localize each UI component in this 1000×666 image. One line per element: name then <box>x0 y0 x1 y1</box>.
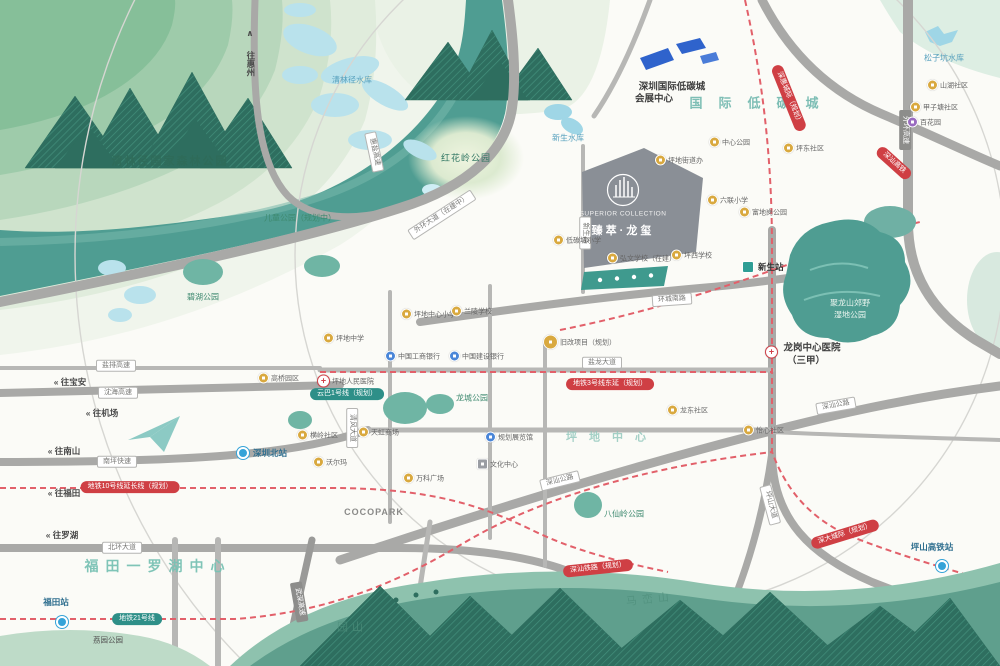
road-pill-13: 武深高速 <box>289 581 308 623</box>
poi-3: 低碳城小学 <box>553 235 601 246</box>
metro-badge-3: 地铁10号线延长线（规划） <box>81 481 180 493</box>
metro-badge-2: 地铁3号线东延（规划） <box>566 378 654 390</box>
map-label-1: 清林径水库 <box>332 75 372 84</box>
poi-label: 沃尔玛 <box>326 457 347 467</box>
road-pill-8: 环城南路 <box>652 292 693 307</box>
station-label: 坪山高铁站 <box>911 541 954 553</box>
poi-21: 中国工商银行 <box>385 351 440 362</box>
map-label-22: « 往机场 <box>86 409 119 419</box>
map-label-27: 八仙岭公园 <box>604 509 644 518</box>
poi-icon <box>667 405 678 416</box>
map-label-26: 荔园公园 <box>93 637 123 646</box>
poi-icon <box>485 432 496 443</box>
poi-12: 横岭社区 <box>297 430 338 441</box>
map-label-11: （三甲） <box>787 357 825 368</box>
poi-icon <box>258 373 269 384</box>
road-pill-0: 盐排高速 <box>96 360 136 372</box>
poi-label: 万科广场 <box>416 473 444 483</box>
poi-26 <box>765 346 780 359</box>
poi-icon <box>655 155 666 166</box>
poi-icon <box>297 430 308 441</box>
road-pill-11: 深汕公路 <box>815 396 857 415</box>
poi-icon <box>709 137 720 148</box>
poi-13: 天虹商场 <box>358 427 399 438</box>
station-2: 坪山高铁站 <box>936 560 948 572</box>
poi-icon <box>449 351 460 362</box>
poi-icon <box>451 306 462 317</box>
poi-18: 山湖社区 <box>927 80 968 91</box>
poi-19: 甲子塘社区 <box>910 102 958 113</box>
map-label-25: « 往罗湖 <box>46 531 79 541</box>
poi-label: 兰陵学校 <box>464 306 492 316</box>
poi-label: 甲子塘社区 <box>923 102 958 112</box>
poi-label: 怡心社区 <box>756 425 784 435</box>
road-pill-2: 南坪快速 <box>97 456 137 468</box>
poi-6: 坪地街道办 <box>655 155 703 166</box>
poi-label: 龙东社区 <box>680 405 708 415</box>
poi-label: 高桥园区 <box>271 373 299 383</box>
station-dot <box>56 616 68 628</box>
metro-badge-4: 深大城际（规划） <box>810 518 880 550</box>
map-label-20: ∧ <box>247 29 254 39</box>
poi-label: 百花园 <box>920 117 941 127</box>
poi-icon <box>401 309 412 320</box>
poi-label: 坪西学校 <box>684 250 712 260</box>
map-label-5: 深圳国际低碳城 <box>639 83 706 94</box>
poi-16: 龙东社区 <box>667 405 708 416</box>
poi-icon <box>907 117 918 128</box>
station-dot <box>742 261 754 273</box>
road-pill-3: 北环大道 <box>102 542 142 554</box>
poi-label: 规划展览馆 <box>498 432 533 442</box>
metro-badge-6: 地铁21号线 <box>112 613 162 625</box>
poi-icon <box>739 207 750 218</box>
poi-icon <box>607 253 618 264</box>
hospital-icon <box>765 346 778 359</box>
metro-badge-1: 深汕高铁 <box>874 145 913 182</box>
poi-icon <box>385 351 396 362</box>
poi-icon <box>403 473 414 484</box>
poi-20: 旧改项目（规划） <box>543 335 616 350</box>
map-label-3: 新生水库 <box>552 133 584 142</box>
poi-label: 富地岗公园 <box>752 207 787 217</box>
map-label-13: 湿地公园 <box>834 310 866 319</box>
poi-7: 中心公园 <box>709 137 750 148</box>
poi-icon <box>927 80 938 91</box>
poi-9: 六联小学 <box>707 195 748 206</box>
poi-icon <box>783 143 794 154</box>
station-label: 新生站 <box>758 261 784 273</box>
poi-icon <box>910 102 921 113</box>
poi-label: 弘文学校（在建） <box>620 253 676 263</box>
map-label-19: 往惠州 <box>245 51 255 77</box>
map-label-0: 清林径国家森林公园 <box>112 156 229 169</box>
poi-8: 坪东社区 <box>783 143 824 154</box>
map-canvas: SUPERIOR COLLECTION 臻萃·龙玺 清林径国家森林公园清林径水库… <box>0 0 1000 666</box>
poi-label: 中国工商银行 <box>398 351 440 361</box>
poi-25: 百花园 <box>907 117 941 128</box>
hospital-icon <box>317 375 330 388</box>
poi-label: 坪地中心小学 <box>414 309 456 319</box>
poi-23: 规划展览馆 <box>485 432 533 443</box>
road-pill-6: 清风大道 <box>346 408 358 448</box>
map-label-2: 红花岭公园 <box>441 153 491 163</box>
poi-24: 文化中心 <box>477 459 518 470</box>
poi-icon <box>313 457 324 468</box>
road-pill-10: 深汕公路 <box>539 470 581 492</box>
map-label-17: 马峦山 <box>625 591 674 609</box>
station-3: 新生站 <box>742 261 754 273</box>
map-label-24: « 往福田 <box>48 489 81 499</box>
station-1: 福田站 <box>56 616 68 628</box>
poi-1: 坪地中心小学 <box>401 309 456 320</box>
poi-label: 文化中心 <box>490 459 518 469</box>
poi-icon <box>477 459 488 470</box>
poi-2: 兰陵学校 <box>451 306 492 317</box>
poi-5: 坪西学校 <box>671 250 712 261</box>
poi-icon <box>707 195 718 206</box>
station-label: 深圳北站 <box>253 447 287 459</box>
poi-icon <box>358 427 369 438</box>
road-pill-1: 沈海高速 <box>98 387 138 399</box>
map-label-21: « 往宝安 <box>54 378 87 388</box>
map-label-23: « 往南山 <box>48 447 81 457</box>
project-brand-cn: 臻萃·龙玺 <box>592 222 655 238</box>
poi-label: 坪东社区 <box>796 143 824 153</box>
road-pill-14: 坪山大道 <box>759 484 781 526</box>
poi-10: 富地岗公园 <box>739 207 787 218</box>
station-dot <box>237 447 249 459</box>
metro-badge-5: 深汕铁路（规划） <box>563 559 634 578</box>
map-label-28: 龙城公园 <box>456 393 488 402</box>
map-label-18: 园山 <box>337 622 367 635</box>
poi-15: 万科广场 <box>403 473 444 484</box>
poi-4: 弘文学校（在建） <box>607 253 676 264</box>
map-label-8: 福田一罗湖中心 <box>85 558 232 574</box>
poi-label: 低碳城小学 <box>566 235 601 245</box>
map-label-4: 松子坑水库 <box>924 53 964 62</box>
poi-0: 坪地中学 <box>323 333 364 344</box>
map-label-14: 碧湖公园 <box>187 292 219 301</box>
station-label: 福田站 <box>43 596 69 608</box>
poi-27: 坪地人民医院 <box>317 375 374 388</box>
map-label-6: 会展中心 <box>635 95 673 106</box>
poi-icon <box>743 425 754 436</box>
map-label-9: 坪地中心 <box>566 432 658 445</box>
road-pill-7: 盐龙大道 <box>582 357 622 369</box>
poi-icon <box>553 235 564 246</box>
project-brand-en: SUPERIOR COLLECTION <box>580 211 667 218</box>
map-label-7: 国际低碳城 <box>689 97 834 112</box>
road-pill-4: 惠盐高速 <box>364 131 384 173</box>
poi-label: 坪地街道办 <box>668 155 703 165</box>
poi-11: 高桥园区 <box>258 373 299 384</box>
poi-14: 沃尔玛 <box>313 457 347 468</box>
poi-17: 怡心社区 <box>743 425 784 436</box>
poi-label: 中心公园 <box>722 137 750 147</box>
map-label-15: 儿童公园（规划中） <box>264 213 336 222</box>
poi-label: 六联小学 <box>720 195 748 205</box>
station-dot <box>936 560 948 572</box>
station-0: 深圳北站 <box>237 447 249 459</box>
labels-layer: SUPERIOR COLLECTION 臻萃·龙玺 清林径国家森林公园清林径水库… <box>0 0 1000 666</box>
poi-icon <box>671 250 682 261</box>
map-label-16: COCOPARK <box>344 507 404 517</box>
map-label-12: 聚龙山郊野 <box>830 298 870 307</box>
poi-label: 中国建设银行 <box>462 351 504 361</box>
poi-icon <box>543 335 558 350</box>
poi-label: 坪地人民医院 <box>332 376 374 386</box>
poi-icon <box>323 333 334 344</box>
poi-22: 中国建设银行 <box>449 351 504 362</box>
poi-label: 坪地中学 <box>336 333 364 343</box>
metro-badge-7: 云巴1号线（规划） <box>310 388 384 400</box>
poi-label: 山湖社区 <box>940 80 968 90</box>
poi-label: 横岭社区 <box>310 430 338 440</box>
road-pill-5: 外环大道（在建中） <box>407 189 477 240</box>
poi-label: 旧改项目（规划） <box>560 337 616 347</box>
map-label-10: 龙岗中心医院 <box>783 344 840 355</box>
poi-label: 天虹商场 <box>371 427 399 437</box>
